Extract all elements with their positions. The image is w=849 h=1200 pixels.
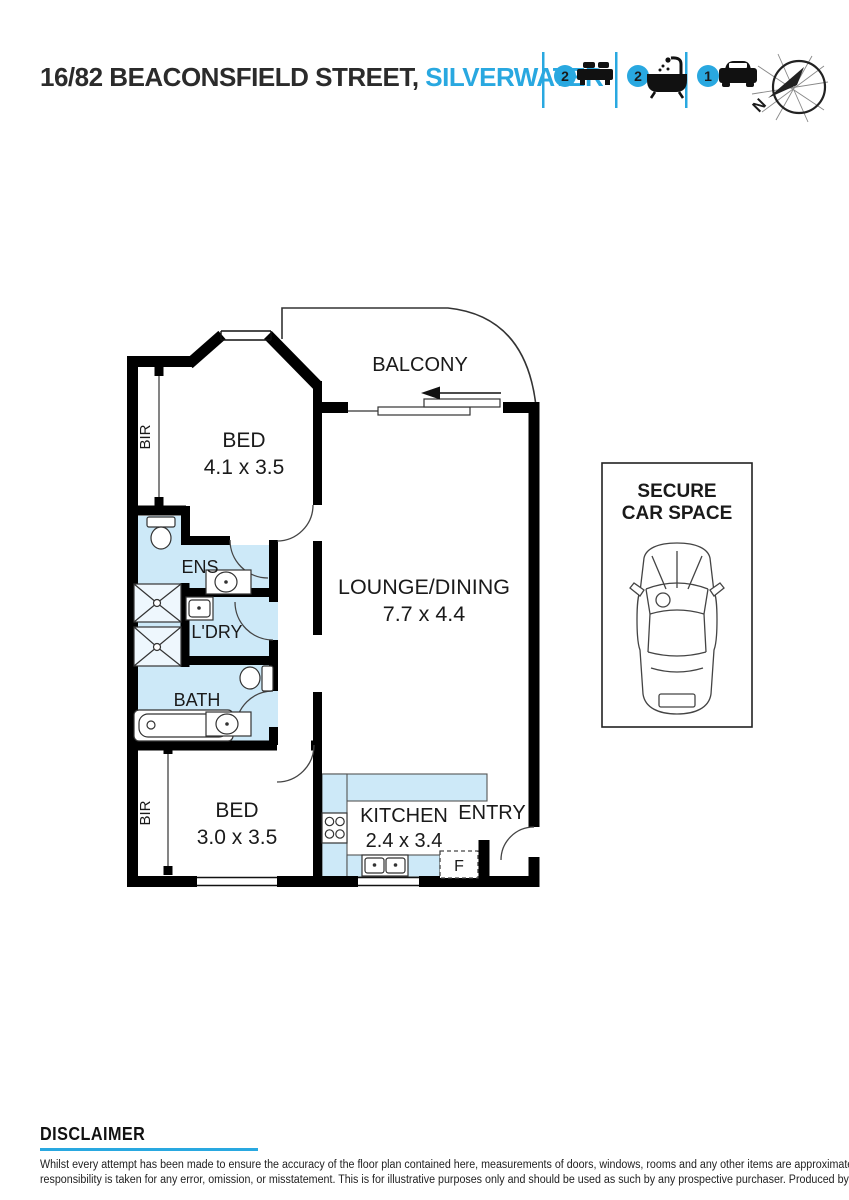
kitchen-window bbox=[358, 878, 419, 886]
lounge-dims: 7.7 x 4.4 bbox=[383, 602, 466, 626]
stat-divider bbox=[542, 52, 545, 108]
bed1-dims: 4.1 x 3.5 bbox=[204, 456, 285, 479]
car-space-label-2: CAR SPACE bbox=[622, 503, 733, 524]
bir-bottom-label: BIR bbox=[137, 800, 154, 825]
bed2-window bbox=[197, 878, 277, 886]
kitchen-sink-icon bbox=[362, 855, 408, 876]
car-icon bbox=[719, 61, 757, 87]
bath-label: BATH bbox=[174, 690, 221, 710]
property-stats: 2 2 bbox=[542, 52, 757, 108]
disclaimer-underline bbox=[40, 1148, 258, 1151]
car-space-label-1: SECURE bbox=[637, 481, 716, 502]
bed1-label: BED bbox=[222, 429, 265, 452]
bed2-door-arc bbox=[277, 745, 314, 782]
balcony-label: BALCONY bbox=[372, 354, 468, 376]
bath-count-badge: 2 bbox=[627, 65, 649, 87]
entry-label: ENTRY bbox=[458, 802, 525, 824]
entry-door-arc bbox=[501, 827, 534, 860]
bed1-door-arc bbox=[277, 505, 313, 541]
bed2-label: BED bbox=[215, 799, 258, 822]
floorplan-page: 16/82 BEACONSFIELD STREET, SILVERWATER 2 bbox=[0, 0, 849, 1200]
fridge-label: F bbox=[454, 858, 464, 875]
kitchen-label: KITCHEN bbox=[360, 805, 448, 827]
disclaimer-line-2: responsibility is taken for any error, o… bbox=[40, 1173, 779, 1188]
car-count-badge: 1 bbox=[697, 65, 719, 87]
bed-count: 2 bbox=[561, 68, 569, 84]
bath-basin-icon bbox=[206, 712, 251, 736]
disclaimer-text: Whilst every attempt has been made to en… bbox=[40, 1158, 779, 1188]
cooktop-icon bbox=[322, 813, 347, 843]
bay-window bbox=[221, 331, 271, 340]
compass-north-label: N bbox=[750, 96, 770, 116]
bed-count-badge: 2 bbox=[554, 65, 576, 87]
kitchen-dims: 2.4 x 3.4 bbox=[366, 830, 443, 852]
disclaimer-section: DISCLAIMER Whilst every attempt has been… bbox=[40, 1124, 835, 1188]
laundry-label: L'DRY bbox=[191, 622, 242, 642]
compass: N bbox=[750, 54, 828, 122]
car-space-box: SECURE CAR SPACE bbox=[602, 463, 752, 727]
car-count: 1 bbox=[704, 68, 712, 84]
shower-icon bbox=[134, 627, 181, 666]
balcony-sliding-door bbox=[348, 387, 501, 416]
disclaimer-line-1: Whilst every attempt has been made to en… bbox=[40, 1158, 779, 1173]
bed-icon bbox=[577, 62, 613, 85]
slide-direction-arrow bbox=[421, 387, 440, 400]
floorplan-graphic: 2 2 bbox=[0, 0, 849, 1200]
shower-icon bbox=[134, 584, 181, 622]
ens-label: ENS bbox=[181, 557, 218, 577]
bed2-dims: 3.0 x 3.5 bbox=[197, 826, 278, 849]
stat-divider bbox=[615, 52, 618, 108]
bath-count: 2 bbox=[634, 68, 642, 84]
lounge-label: LOUNGE/DINING bbox=[338, 575, 510, 599]
laundry-tub-icon bbox=[186, 597, 213, 620]
bath-icon bbox=[647, 57, 687, 98]
bir-top-label: BIR bbox=[137, 424, 154, 449]
disclaimer-heading: DISCLAIMER bbox=[40, 1124, 756, 1145]
